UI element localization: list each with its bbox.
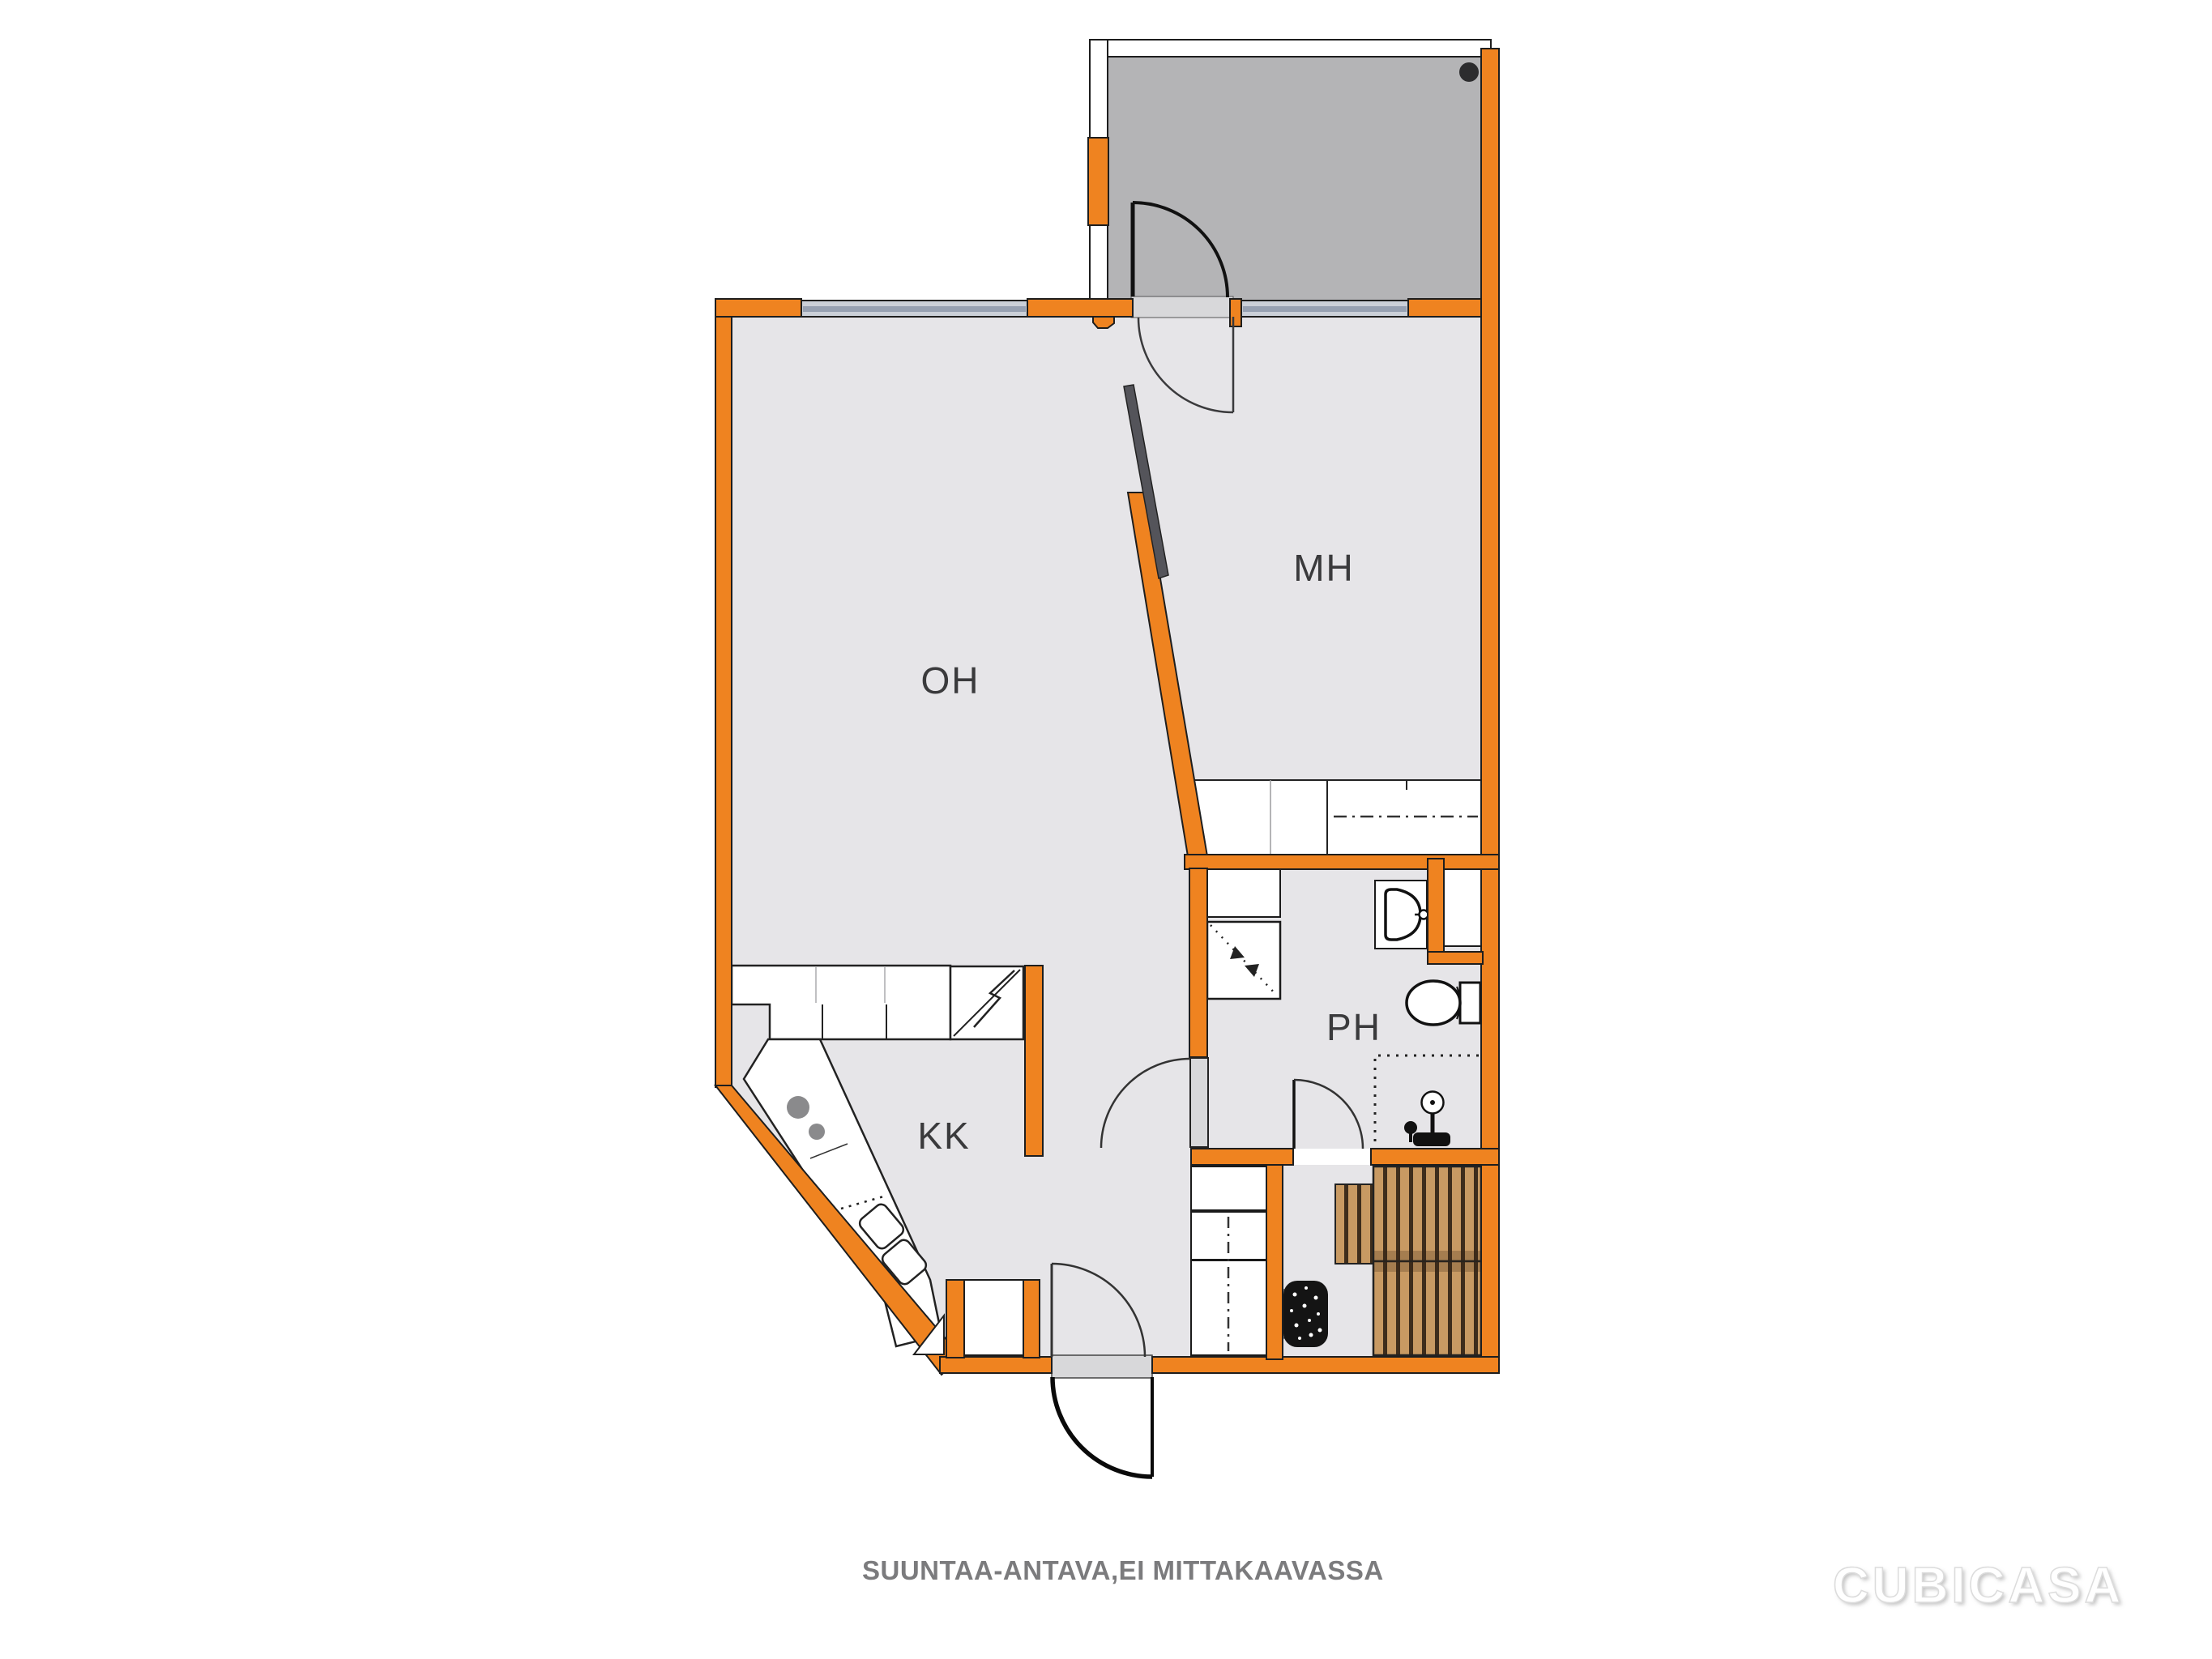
cubicasa-watermark: CUBICASA (1833, 1557, 2124, 1614)
wall-ph-niche (1428, 859, 1444, 954)
wall-sauna-left (1266, 1165, 1283, 1359)
wall-right (1481, 49, 1499, 1373)
wall-kk-partition (1025, 966, 1043, 1156)
sink-bowl-icon (809, 1124, 825, 1140)
sink-bowl-icon (787, 1096, 809, 1119)
floor-plan-canvas: OH MH KK PH (0, 0, 2212, 1659)
wall-sauna-top (1371, 1149, 1499, 1165)
shower-square (1207, 922, 1280, 999)
upper-right-closet (1444, 869, 1481, 946)
wall-mh-bottom (1185, 855, 1499, 869)
sauna-doorway-gap (1293, 1149, 1371, 1165)
balcony-top-railing (1090, 40, 1491, 57)
entry-closet (962, 1280, 1023, 1355)
wall-hall-bottom (1191, 1149, 1293, 1165)
washbasin-icon (1375, 881, 1428, 949)
sauna-bench-upper (1373, 1166, 1481, 1261)
closet-box (1191, 1166, 1266, 1210)
wall-entry-stub-right (1023, 1280, 1040, 1358)
wall-top-a (715, 299, 801, 317)
window-2 (1241, 301, 1408, 317)
sauna-stove-icon (1278, 1281, 1328, 1347)
wall-left (715, 299, 732, 1087)
wall-top-d (1408, 299, 1489, 317)
wall-door-stub (1093, 317, 1114, 328)
wall-top-b (1027, 299, 1133, 317)
room-label-ph: PH (1326, 1006, 1381, 1048)
wall-top-c (1230, 299, 1241, 326)
balcony-doorway-threshold (1131, 296, 1233, 318)
room-label-oh: OH (921, 659, 980, 702)
bathroom-cabinet (1207, 869, 1280, 917)
wall-ph-niche-foot (1428, 952, 1483, 964)
balcony-drain-dot-icon (1459, 62, 1479, 82)
bedroom-furniture (1189, 780, 1481, 855)
toilet-icon (1407, 981, 1480, 1025)
room-label-kk: KK (917, 1115, 970, 1157)
sauna-bench-step (1335, 1184, 1373, 1264)
entry-doorway-threshold (1052, 1355, 1152, 1378)
disclaimer-text: SUUNTAA-ANTAVA,EI MITTAKAAVASSA (862, 1555, 1384, 1586)
room-label-mh: MH (1293, 547, 1355, 589)
wall-bottom-left (940, 1357, 1052, 1373)
wall-bottom-right (1152, 1357, 1499, 1373)
wall-entry-stub-left (946, 1280, 964, 1358)
window-1 (801, 301, 1027, 317)
wall-ph-left (1189, 868, 1207, 1057)
sauna-bench-lower (1373, 1261, 1481, 1355)
balcony-floor (1108, 57, 1481, 301)
sauna-bench-shade (1373, 1251, 1481, 1272)
hall-closets (1191, 1166, 1266, 1355)
balcony-left-wall-pier (1088, 138, 1108, 225)
